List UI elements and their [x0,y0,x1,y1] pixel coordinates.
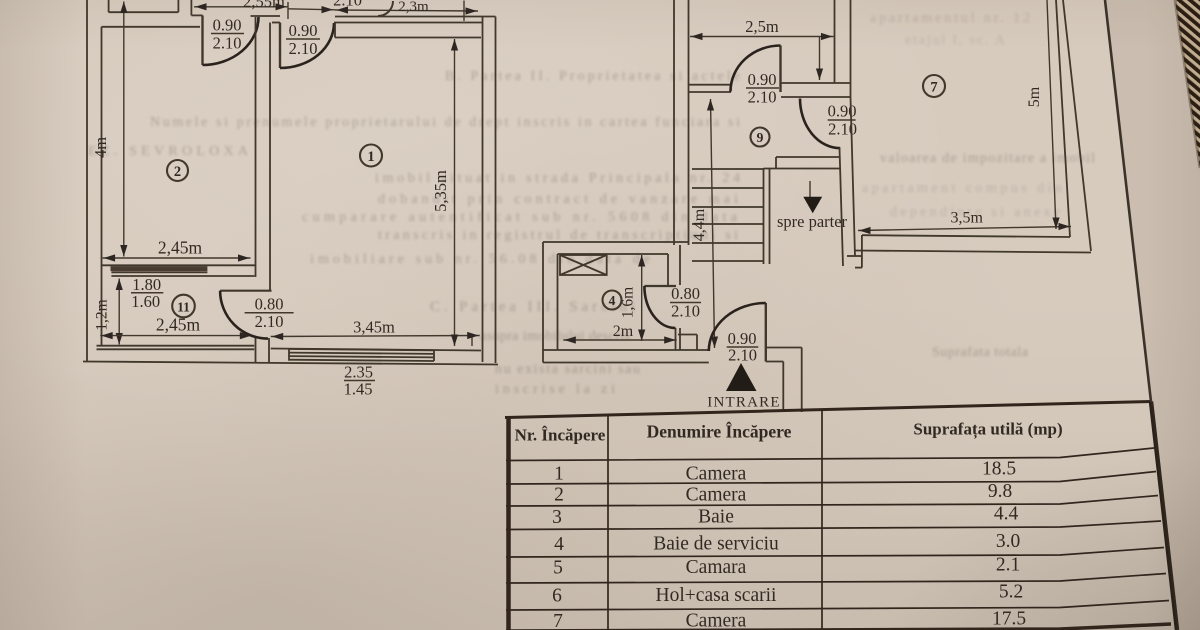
svg-text:0.90: 0.90 [748,70,777,89]
svg-text:4,4m: 4,4m [691,208,708,241]
svg-text:2,5m: 2,5m [745,17,779,36]
svg-text:4: 4 [609,293,616,308]
svg-text:1,6m: 1,6m [620,287,637,318]
svg-text:2.1: 2.1 [996,555,1020,576]
svg-text:3,5m: 3,5m [950,210,983,227]
svg-text:2.10: 2.10 [289,39,318,58]
svg-text:0.80: 0.80 [671,284,700,303]
svg-text:2.10: 2.10 [728,346,757,365]
svg-text:Suprafata totala: Suprafata totala [932,345,1029,360]
svg-text:valoarea de impozitare a imobi: valoarea de impozitare a imobil [880,151,1095,166]
svg-text:5.2: 5.2 [999,582,1023,603]
svg-text:apartamentul nr. 12: apartamentul nr. 12 [870,11,1030,26]
svg-text:5: 5 [553,558,563,579]
svg-text:Camera: Camera [686,611,747,630]
svg-text:0.90: 0.90 [828,102,857,121]
svg-text:Hol+casa scarii: Hol+casa scarii [656,585,777,606]
svg-text:1,2m: 1,2m [94,299,111,330]
svg-text:4m: 4m [91,137,110,158]
svg-text:Nr. Încăpere: Nr. Încăpere [515,426,606,445]
svg-text:5,35m: 5,35m [431,170,450,212]
svg-text:2.10: 2.10 [748,88,777,107]
svg-text:9.8: 9.8 [988,481,1012,502]
svg-text:Camera: Camera [686,464,747,485]
svg-text:1.60: 1.60 [131,292,160,311]
svg-text:Baie: Baie [698,507,734,528]
svg-text:etajul I, sc. A: etajul I, sc. A [905,33,1006,48]
svg-text:1.45: 1.45 [344,380,373,399]
svg-text:Suprafața utilă (mp): Suprafața utilă (mp) [913,420,1062,440]
svg-text:2: 2 [174,164,181,180]
svg-text:transcris in registrul de tran: transcris in registrul de transcriptiuni… [378,228,738,243]
svg-text:nu exista sarcini sau: nu exista sarcini sau [495,362,640,377]
svg-text:2,45m: 2,45m [158,238,203,258]
svg-text:2,3m: 2,3m [398,0,429,15]
svg-text:7: 7 [930,80,937,96]
svg-text:3.0: 3.0 [996,531,1020,552]
svg-text:17.5: 17.5 [992,609,1026,630]
svg-text:7: 7 [553,611,563,630]
svg-text:2,45m: 2,45m [156,315,201,335]
svg-text:3,45m: 3,45m [353,318,395,337]
svg-text:0.90: 0.90 [213,16,242,35]
svg-text:Camera: Camera [686,485,747,506]
svg-text:Denumire Încăpere: Denumire Încăpere [647,422,792,442]
svg-text:9: 9 [757,130,764,145]
svg-text:2.10: 2.10 [255,312,284,331]
svg-text:2.10: 2.10 [828,120,857,139]
svg-text:Camara: Camara [686,557,747,578]
svg-text:2.10: 2.10 [671,302,700,321]
svg-text:2.10: 2.10 [333,0,362,10]
svg-text:inscrise la zi: inscrise la zi [495,382,615,397]
svg-text:B. Partea II. Proprietatea si: B. Partea II. Proprietatea si actele [445,69,740,84]
svg-text:0.90: 0.90 [289,21,318,40]
svg-text:3: 3 [552,507,562,528]
svg-text:EZ. SEVROLOXA: EZ. SEVROLOXA [88,144,249,159]
svg-text:cumparare autentificat sub nr.: cumparare autentificat sub nr. 5608 din … [302,210,738,225]
svg-text:1: 1 [367,149,374,165]
svg-text:Numele si prenumele proprietar: Numele si prenumele proprietarului de dr… [150,115,740,130]
svg-text:spre parter: spre parter [777,212,848,231]
svg-text:2: 2 [554,485,564,506]
svg-text:2.10: 2.10 [213,34,242,53]
svg-text:2m: 2m [613,323,634,340]
svg-text:INTRARE: INTRARE [707,395,780,411]
svg-text:4: 4 [554,534,564,555]
svg-text:6: 6 [552,586,562,607]
svg-text:1: 1 [554,464,564,485]
svg-text:0.80: 0.80 [255,295,284,314]
svg-text:18.5: 18.5 [982,459,1016,480]
svg-text:4.4: 4.4 [994,504,1019,525]
svg-text:Baie de serviciu: Baie de serviciu [653,534,779,555]
svg-text:asupra imobilului descris: asupra imobilului descris [480,329,630,344]
svg-text:2,55m: 2,55m [243,0,285,11]
svg-text:5m: 5m [1026,86,1043,107]
svg-text:11: 11 [177,300,190,315]
svg-text:apartament compus din: apartament compus din [862,181,1062,196]
svg-text:imobil situat in strada Princi: imobil situat in strada Principala nr. 2… [375,171,740,186]
